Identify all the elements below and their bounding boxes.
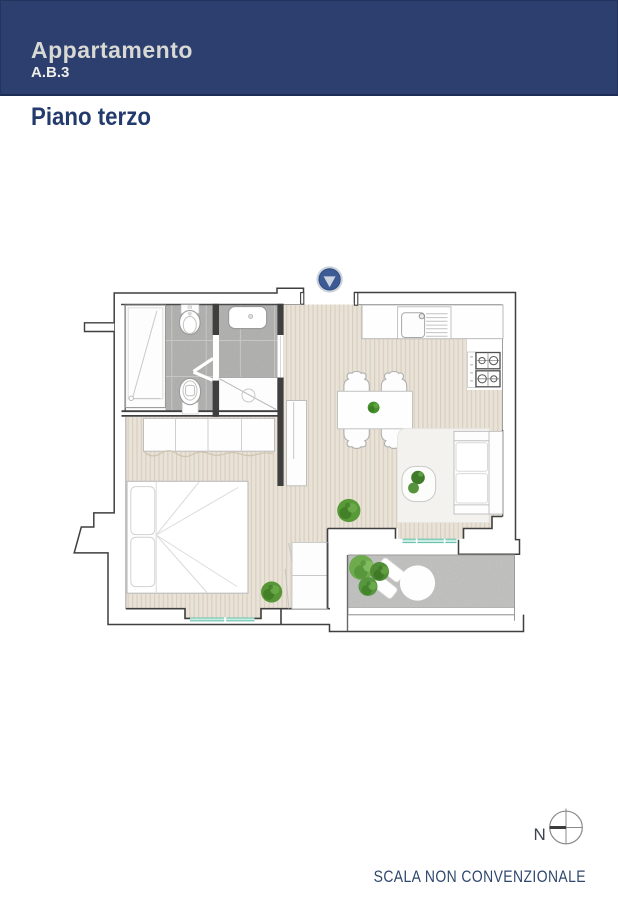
svg-text:N: N — [534, 825, 546, 844]
